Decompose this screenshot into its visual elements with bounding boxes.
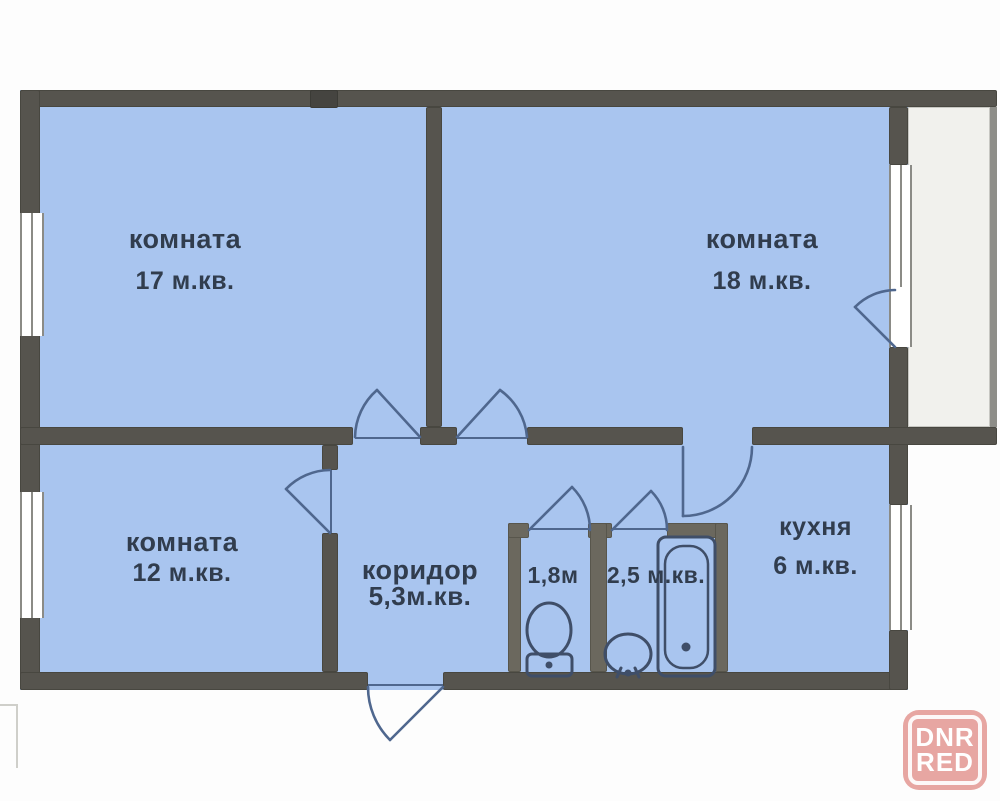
room18-name: комната — [662, 224, 862, 254]
balcony-window — [889, 165, 912, 287]
kitchen-label: кухня 6 м.кв. — [738, 513, 893, 579]
corridor-area: 5,3м.кв. — [330, 584, 510, 608]
room12-name: комната — [82, 527, 282, 557]
kitchen-area: 6 м.кв. — [738, 553, 893, 579]
kitchen-name: кухня — [738, 513, 893, 541]
floor-plan: комната 17 м.кв. комната 18 м.кв. комнат… — [0, 0, 1000, 801]
room18-area: 18 м.кв. — [662, 267, 862, 295]
wall-bottom-left — [20, 672, 368, 690]
wall-right-middle — [889, 347, 908, 505]
wall-mid-2 — [420, 427, 457, 445]
room18-label: комната 18 м.кв. — [662, 224, 862, 295]
wall-bottom-right — [443, 672, 908, 690]
corridor-label: коридор 5,3м.кв. — [330, 556, 510, 608]
bath-area: 2,5 м.кв. — [598, 562, 714, 588]
room17-label: комната 17 м.кв. — [85, 224, 285, 295]
room17-window — [20, 213, 44, 336]
toilet-label: 1,8м — [515, 562, 591, 588]
wall-right-upper — [889, 107, 908, 165]
wall-rooms-divider — [426, 107, 442, 427]
wall-top — [20, 90, 997, 107]
wall-toilet-bath-divider-2 — [590, 523, 607, 672]
wall-vent-block — [310, 90, 338, 108]
corridor-name: коридор — [330, 556, 510, 584]
room12-area: 12 м.кв. — [82, 559, 282, 587]
entrance-door-swing — [368, 687, 443, 740]
toilet-area: 1,8м — [515, 562, 591, 588]
room17-name: комната — [85, 224, 285, 254]
wall-right-lower — [889, 630, 908, 690]
room12-window — [20, 492, 44, 618]
wall-mid-4 — [752, 427, 997, 445]
room17-area: 17 м.кв. — [85, 267, 285, 295]
bath-label: 2,5 м.кв. — [598, 562, 714, 588]
wall-mid-3 — [527, 427, 683, 445]
neighbor-outline — [0, 705, 17, 768]
wall-mid-1 — [20, 427, 353, 445]
room12-label: комната 12 м.кв. — [82, 527, 282, 587]
watermark-badge: DNR RED — [903, 710, 987, 790]
balcony — [908, 107, 990, 427]
wall-corridor-stub — [322, 445, 338, 470]
wall-toilet-top-stub — [508, 523, 529, 538]
balcony-door-gap — [889, 287, 912, 347]
wall-bath-right — [715, 523, 728, 672]
watermark-line2: RED — [916, 750, 974, 775]
watermark-frame: DNR RED — [908, 715, 982, 785]
entrance-opening — [368, 672, 443, 685]
balcony-outer-wall — [990, 107, 997, 427]
